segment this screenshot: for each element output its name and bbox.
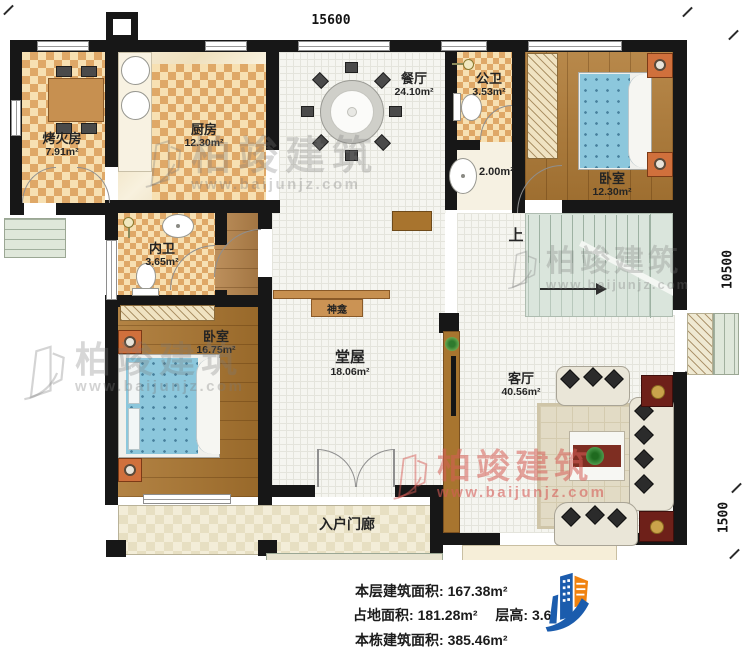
stat-total-area-value: 385.46m² [448,632,508,648]
wall-fireroom-bottom-a [10,203,24,215]
wall-left-mid-b [105,300,118,505]
stat-total-area-label: 本栋建筑面积: [355,632,444,648]
dining-chair-w [301,106,314,117]
staircase [525,213,673,317]
stairs-up-label: 上 [508,228,523,245]
inner-bath-basin-drain [176,224,180,228]
coffee-table-plant [586,447,604,465]
dim-tick-1 [3,5,14,16]
dimension-top-width: 15600 [301,13,361,28]
window-publicbath-top [441,41,487,51]
stat-height-label: 层高: [495,607,528,623]
dim-tick-3 [728,30,739,41]
fire-room-chair-4 [81,123,97,134]
bedroom-w-name: 卧室 [203,329,229,344]
stat-floor-area-value: 167.38m² [448,583,508,599]
stove-burner-bottom [121,91,150,120]
hall-area: 18.06m² [330,367,369,379]
wall-hall-bedroom-a [258,200,272,229]
wall-hall-bedroom-b [258,277,272,505]
dining-name: 餐厅 [401,71,427,86]
kitchen-name: 厨房 [191,122,217,137]
left-exterior-steps [4,218,66,258]
stair-arrow-icon [596,283,607,295]
window-bedroomw-bottom [143,494,231,504]
dim-top-value: 15600 [311,13,350,28]
bedroom-w-pillow-2 [128,408,140,450]
room-label-bedroom-ne: 卧室 12.30m² [592,172,631,198]
fireroom-area: 7.91m² [42,147,81,159]
title-block: 一层平面图 1:100 本层建筑面积: 167.38m² 占地面积: 181.2… [0,560,750,654]
dining-chair-n [345,62,358,73]
stat-floor-area-label: 本层建筑面积: [355,583,444,599]
hall-side-cabinet [392,211,432,231]
dim-tick-5 [729,549,740,560]
brand-logo-icon [542,566,598,634]
tv-cabinet-plant [445,337,459,351]
kitchen-area: 12.30m² [184,138,223,150]
window-kitchen-top [205,41,247,51]
dim-right-value: 10500 [721,250,736,289]
living-area: 40.56m² [501,387,540,399]
wall-fireroom-bottom-b [56,203,105,215]
porch-column-left [106,540,126,557]
wall-hall-bottom-b [395,485,443,497]
innerbath-area: 3.65m² [145,257,178,269]
bedroom-w-lamp-bottom [124,464,136,476]
room-label-fireroom: 烤火房 7.91m² [42,132,81,158]
side-door-steps [713,313,739,375]
stair-direction-line [540,288,596,290]
room-label-publicbath: 公卫 3.53m² [472,72,505,98]
room-label-hall: 堂屋 18.06m² [330,350,369,379]
floor-plan-canvas: 上 [0,0,750,654]
shrine-shelf [273,290,390,299]
watermark-logo-icon [20,342,68,404]
bedroom-w-area: 16.75m² [196,345,235,357]
stat-total-area: 本栋建筑面积: 385.46m² [355,630,508,650]
window-fireroom-left [11,100,21,136]
inner-bath-mixer-knob [123,217,134,228]
room-label-kitchen: 厨房 12.30m² [184,123,223,149]
bedroom-ne-name: 卧室 [599,171,625,186]
inner-bath-toilet-tank [132,288,159,296]
publicbath-area: 3.53m² [472,87,505,99]
room-label-porch: 入户门廊 [319,517,375,533]
wall-publicbath-sep [445,140,480,150]
public-bath-toilet-tank [453,93,461,121]
public-bath-mixer-knob [463,59,474,70]
bedroom-ne-area: 12.30m² [592,187,631,199]
hall-name: 堂屋 [335,349,365,366]
room-label-dining: 餐厅 24.10m² [394,72,433,98]
dining-chair-e [389,106,402,117]
porch-name: 入户门廊 [319,516,375,532]
fire-room-chair-1 [56,66,72,77]
wash-area-area: 2.00m² [479,166,514,178]
publicbath-name: 公卫 [476,71,502,86]
dim-porch-value: 1500 [717,502,732,533]
window-bedroomne-top [528,41,622,51]
bedroom-ne-mattress [580,74,630,168]
window-bedroomw-left [106,240,117,300]
dining-table-center [347,107,357,117]
wash-basin-drain [461,174,465,178]
stat-footprint-value: 181.28m² [418,607,478,623]
hall-column [439,313,459,333]
tv-screen [451,356,456,416]
window-dining-top [298,41,390,51]
entry-door-left-leaf [317,449,319,487]
sofa-right [629,397,674,511]
wall-innerbath-right-a [215,213,227,245]
bedroom-ne-lamp-bottom [654,158,666,170]
wall-right-upper [673,40,687,310]
room-label-living: 客厅 40.56m² [501,372,540,398]
dim-tick-2 [682,7,693,18]
fire-room-chair-2 [81,66,97,77]
fireroom-kitchen-door-arc [77,167,110,203]
stair-treads-upper [528,215,650,263]
bedroom-w-wardrobe [120,305,215,321]
dining-chair-s [345,150,358,161]
shrine-cabinet: 神龛 [311,299,363,317]
fireroom-name: 烤火房 [42,131,81,146]
bedroom-w-pillow-1 [128,362,140,404]
shrine-label: 神龛 [327,305,347,316]
living-name: 客厅 [508,371,534,386]
bedroom-ne-lamp-top [654,59,666,71]
dim-tick-4 [731,483,742,494]
wall-kitchen-bottom [105,200,280,213]
stair-landing-divider [650,214,651,318]
innerbath-name: 内卫 [149,241,175,256]
stat-footprint-label: 占地面积: [353,607,414,623]
fire-room-table [48,78,104,122]
wall-fireroom-kitchen-a [105,40,118,167]
side-table-top-medallion [651,385,665,399]
side-table-bottom-medallion [650,520,664,534]
dimension-porch-depth: 1500 [717,499,732,537]
entry-door-right-leaf [393,449,395,487]
side-door-landing [687,313,713,375]
stat-footprint: 占地面积: 181.28m² 层高: 3.6 [353,605,551,625]
bedroom-w-duvet [196,358,220,454]
wall-hall-bottom-a [258,485,315,497]
wall-bedroomne-bottom-b [562,200,673,213]
wall-kitchen-dining [266,52,279,150]
stairs-up-text: 上 [508,227,523,244]
wall-living-bottom-a [430,533,500,545]
room-label-bedroom-w: 卧室 16.75m² [196,330,235,356]
dining-area: 24.10m² [394,87,433,99]
chimney [106,12,138,42]
stat-floor-area: 本层建筑面积: 167.38m² [355,581,508,601]
room-label-innerbath: 内卫 3.65m² [145,242,178,268]
stove-burner-top [121,56,150,85]
wash-area-label: 2.00m² [479,166,514,178]
window-fireroom-top [37,41,89,51]
wall-right-lower [673,372,687,545]
bedroom-ne-wardrobe [527,53,558,159]
dimension-right-depth: 10500 [721,248,736,292]
bedroom-w-lamp-top [124,336,136,348]
